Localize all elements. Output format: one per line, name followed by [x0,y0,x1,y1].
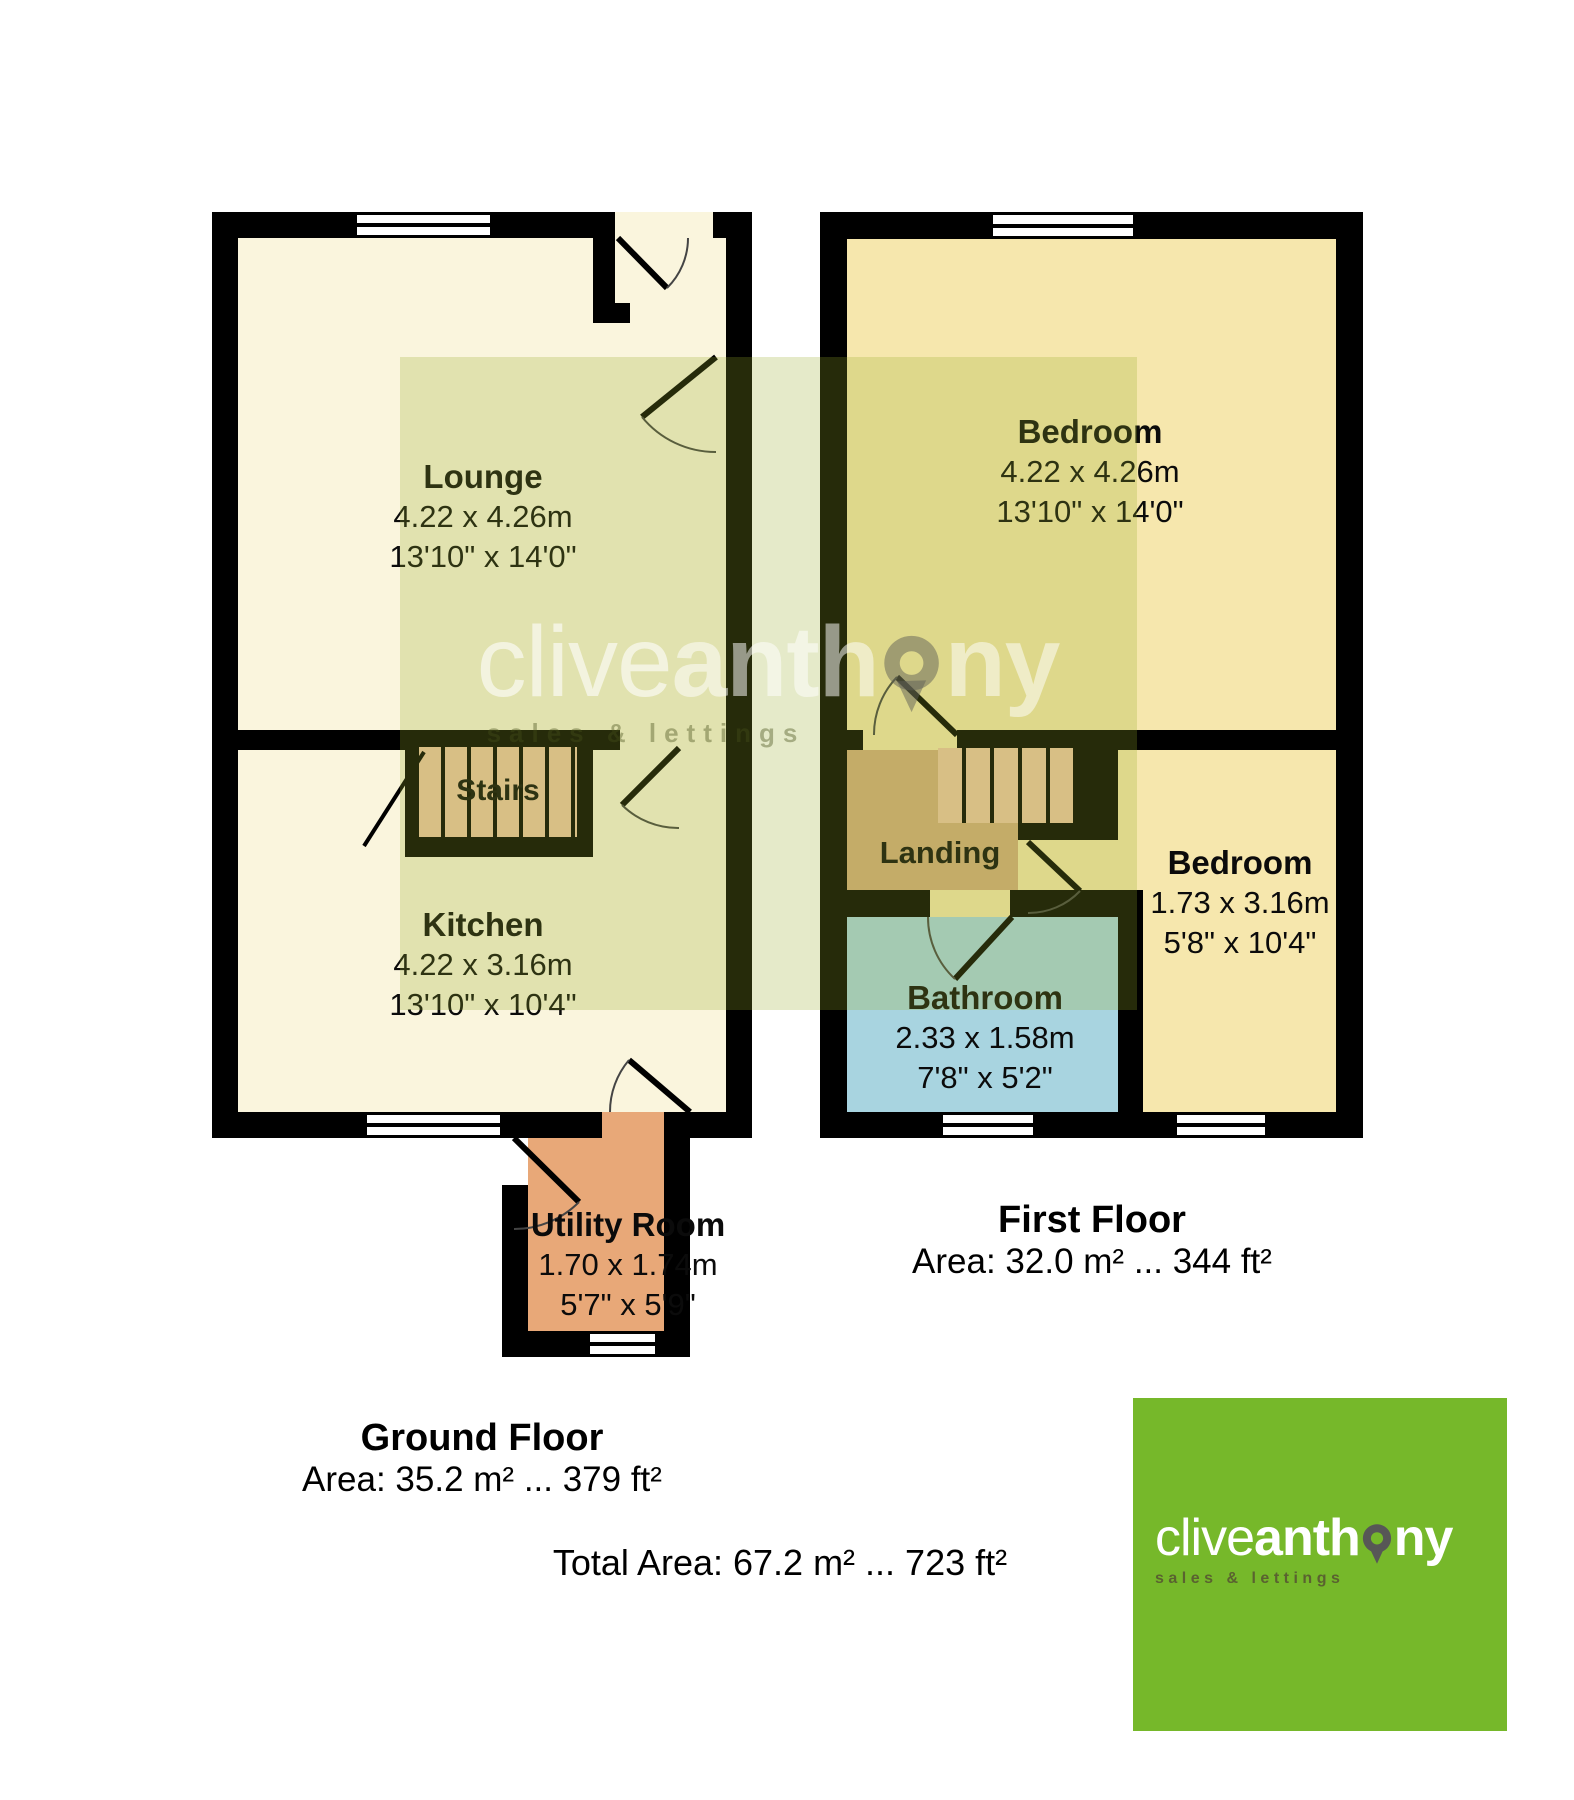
utility-name: Utility Room [531,1205,725,1245]
small-bedroom-window [1177,1112,1265,1138]
small-bedroom-dim-imperial: 5'8" x 10'4" [1150,923,1329,963]
agency-logo: cliveanthny sales & lettings [1133,1398,1507,1731]
utility-dim-metric: 1.70 x 1.74m [531,1245,725,1285]
watermark-brand: cliveanthny [477,606,1060,718]
watermark: cliveanthny sales & lettings [477,606,1060,748]
agency-logo-tagline: sales & lettings [1155,1568,1452,1590]
bathroom-dim-imperial: 7'8" x 5'2" [895,1058,1074,1098]
total-area: Total Area: 67.2 m² ... 723 ft² [553,1542,1007,1584]
lounge-window [357,212,490,238]
agency-logo-text: cliveanthny sales & lettings [1155,1508,1452,1590]
utility-label: Utility Room 1.70 x 1.74m 5'7" x 5'9" [531,1205,725,1325]
floorplan-page: Lounge 4.22 x 4.26m 13'10" x 14'0" Bedro… [0,0,1574,1800]
entrance-opening [615,212,713,238]
bathroom-dim-metric: 2.33 x 1.58m [895,1018,1074,1058]
agency-logo-brand: cliveanthny [1155,1508,1452,1568]
watermark-location-pin-icon [881,634,943,714]
watermark-brand-light: clive [477,606,672,718]
logo-brand-bold-left: anth [1254,1509,1360,1567]
ground-floor-title-block: Ground Floor Area: 35.2 m² ... 379 ft² [302,1416,662,1500]
ground-floor-area: Area: 35.2 m² ... 379 ft² [302,1460,662,1500]
utility-window [590,1331,655,1357]
watermark-brand-bold-left: anth [672,606,879,718]
small-bedroom-dim-metric: 1.73 x 3.16m [1150,883,1329,923]
watermark-brand-bold-right: ny [945,606,1060,718]
first-floor-title-block: First Floor Area: 32.0 m² ... 344 ft² [912,1198,1272,1282]
bedroom-window [993,212,1133,239]
logo-brand-light: clive [1155,1509,1254,1567]
vestibule-wall-horizontal [593,303,630,323]
first-floor-title: First Floor [912,1198,1272,1242]
small-bedroom-label: Bedroom 1.73 x 3.16m 5'8" x 10'4" [1150,843,1329,963]
first-right-wall [1336,212,1363,1138]
kitchen-window [367,1112,500,1138]
small-bedroom-name: Bedroom [1150,843,1329,883]
logo-location-pin-icon [1361,1523,1393,1565]
first-floor-area: Area: 32.0 m² ... 344 ft² [912,1242,1272,1282]
watermark-tagline: sales & lettings [477,718,1060,748]
ground-left-wall [212,212,238,1138]
bathroom-window [943,1112,1033,1138]
ground-floor-title: Ground Floor [302,1416,662,1460]
logo-brand-bold-right: ny [1394,1509,1453,1567]
utility-dim-imperial: 5'7" x 5'9" [531,1285,725,1325]
first-bottom-wall [820,1112,1363,1138]
